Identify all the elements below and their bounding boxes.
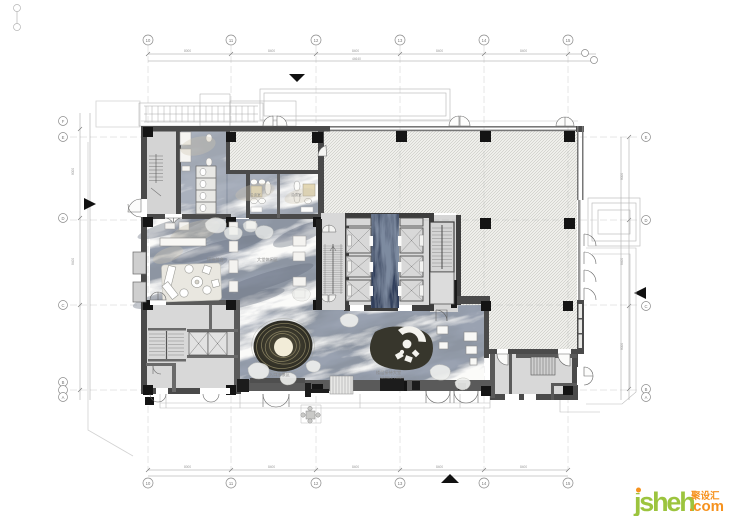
svg-text:E: E (62, 135, 65, 140)
svg-text:8000: 8000 (71, 168, 75, 175)
svg-text:8400: 8400 (520, 465, 527, 469)
svg-text:8000: 8000 (184, 49, 191, 53)
svg-text:洽谈室: 洽谈室 (250, 192, 261, 197)
svg-text:F: F (62, 119, 65, 124)
svg-text:11: 11 (229, 38, 234, 43)
svg-text:洽谈室: 洽谈室 (291, 192, 302, 197)
svg-text:8000: 8000 (184, 465, 191, 469)
svg-text:12: 12 (314, 38, 319, 43)
svg-text:.com: .com (689, 498, 724, 515)
svg-text:13: 13 (398, 481, 403, 486)
svg-text:MARBLE LOBBY: MARBLE LOBBY (380, 376, 405, 380)
svg-text:8000: 8000 (620, 343, 624, 350)
svg-text:8400: 8400 (71, 258, 75, 265)
svg-text:接待前台: 接待前台 (207, 256, 224, 263)
svg-text:8400: 8400 (268, 465, 275, 469)
svg-text:8000: 8000 (620, 173, 624, 180)
svg-text:10: 10 (146, 481, 151, 486)
svg-text:15: 15 (566, 38, 571, 43)
svg-text:A: A (62, 395, 65, 400)
svg-text:8400: 8400 (436, 49, 443, 53)
svg-text:14: 14 (482, 481, 487, 486)
svg-text:44640: 44640 (352, 57, 361, 61)
svg-text:8400: 8400 (352, 465, 359, 469)
svg-text:A: A (645, 395, 648, 400)
svg-text:8400: 8400 (620, 258, 624, 265)
svg-text:D: D (644, 218, 647, 223)
svg-text:8400: 8400 (352, 49, 359, 53)
svg-text:C: C (61, 303, 64, 308)
svg-text:8400: 8400 (520, 49, 527, 53)
svg-text:E: E (645, 135, 648, 140)
svg-text:D: D (61, 216, 64, 221)
svg-text:大堂休闲区: 大堂休闲区 (257, 256, 278, 263)
svg-text:C: C (644, 304, 647, 309)
svg-text:14: 14 (482, 38, 487, 43)
svg-text:B: B (645, 387, 648, 392)
svg-text:入口水景区: 入口水景区 (269, 371, 290, 378)
svg-text:15: 15 (566, 481, 571, 486)
svg-text:13: 13 (398, 38, 403, 43)
svg-text:8400: 8400 (436, 465, 443, 469)
svg-text:jsheh: jsheh (633, 487, 694, 516)
svg-text:8400: 8400 (268, 49, 275, 53)
svg-text:10: 10 (146, 38, 151, 43)
svg-text:11: 11 (229, 481, 234, 486)
svg-text:B: B (62, 380, 65, 385)
svg-text:12: 12 (314, 481, 319, 486)
svg-text:楼层接待大堂: 楼层接待大堂 (376, 369, 401, 376)
